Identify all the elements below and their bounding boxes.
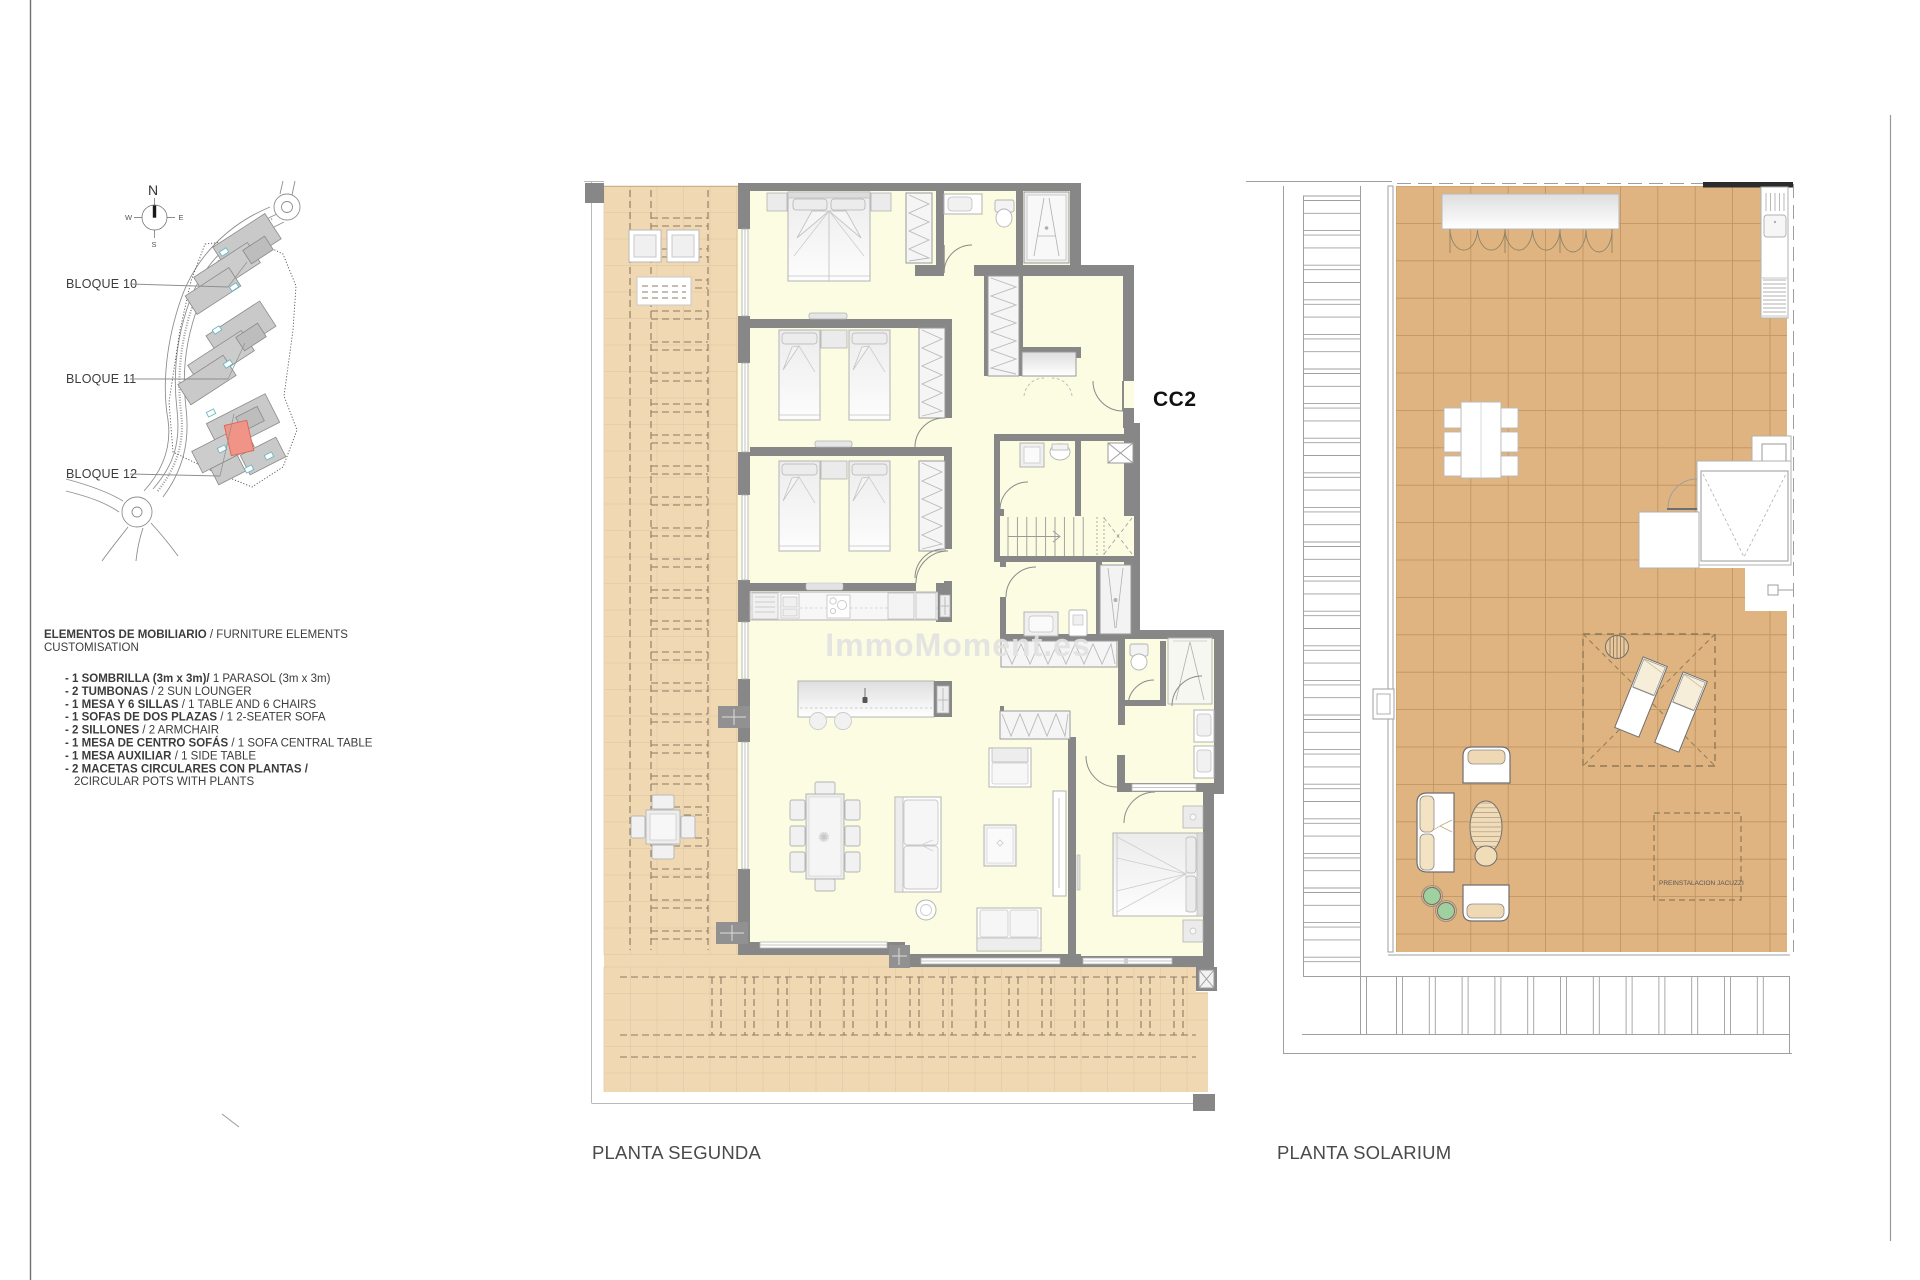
svg-text:CC2: CC2 xyxy=(1153,388,1197,411)
svg-text:- 1 SOMBRILLA (3m x 3m)/ 1 PAR: - 1 SOMBRILLA (3m x 3m)/ 1 PARASOL (3m x… xyxy=(65,673,331,685)
svg-text:2CIRCULAR POTS WITH PLANTS: 2CIRCULAR POTS WITH PLANTS xyxy=(74,776,255,788)
svg-text:E: E xyxy=(179,213,184,222)
svg-text:W: W xyxy=(125,213,133,222)
svg-text:ImmoMoment.es: ImmoMoment.es xyxy=(825,627,1090,663)
svg-text:- 2 SILLONES / 2 ARMCHAIR: - 2 SILLONES / 2 ARMCHAIR xyxy=(65,725,219,737)
svg-text:PREINSTALACION JACUZZI: PREINSTALACION JACUZZI xyxy=(1659,880,1744,887)
svg-text:- 2 MACETAS CIRCULARES CON PLA: - 2 MACETAS CIRCULARES CON PLANTAS / xyxy=(65,763,309,775)
svg-text:PLANTA SOLARIUM: PLANTA SOLARIUM xyxy=(1277,1142,1451,1163)
svg-text:- 1 MESA DE CENTRO SOFÁS / 1 S: - 1 MESA DE CENTRO SOFÁS / 1 SOFA CENTRA… xyxy=(65,737,373,750)
svg-text:- 2 TUMBONAS / 2 SUN LOUNGER: - 2 TUMBONAS / 2 SUN LOUNGER xyxy=(65,686,252,698)
svg-text:- 1 MESA AUXILIAR / 1 SIDE TAB: - 1 MESA AUXILIAR / 1 SIDE TABLE xyxy=(65,750,256,762)
svg-text:BLOQUE 10: BLOQUE 10 xyxy=(66,277,137,291)
svg-text:BLOQUE 11: BLOQUE 11 xyxy=(66,372,136,386)
svg-text:- 1 SOFAS DE DOS PLAZAS / 1 2: - 1 SOFAS DE DOS PLAZAS / 1 2-SEATER SOF… xyxy=(65,712,326,724)
svg-text:N: N xyxy=(148,182,158,198)
svg-text:ELEMENTOS DE MOBILIARIO / FURN: ELEMENTOS DE MOBILIARIO / FURNITURE ELEM… xyxy=(44,629,348,641)
svg-text:✺: ✺ xyxy=(818,829,830,845)
svg-text:BLOQUE 12: BLOQUE 12 xyxy=(66,467,137,481)
svg-text:CUSTOMISATION: CUSTOMISATION xyxy=(44,642,139,654)
svg-text:- 1 MESA Y 6 SILLAS / 1 TABLE: - 1 MESA Y 6 SILLAS / 1 TABLE AND 6 CHAI… xyxy=(65,699,317,711)
svg-text:S: S xyxy=(152,240,157,249)
svg-text:PLANTA SEGUNDA: PLANTA SEGUNDA xyxy=(592,1142,761,1163)
